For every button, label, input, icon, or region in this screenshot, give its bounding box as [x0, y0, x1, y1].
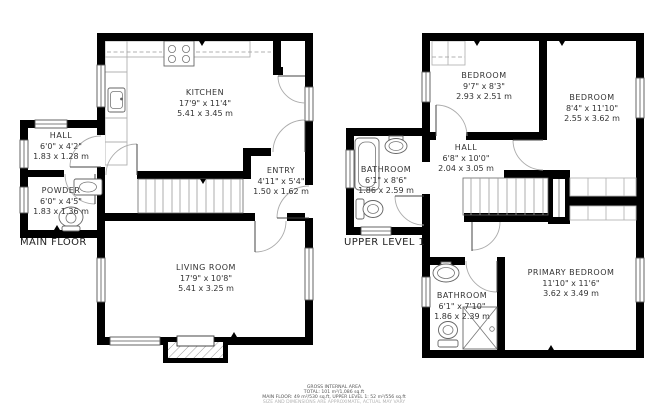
- room-name: BEDROOM: [456, 71, 512, 82]
- room-name: HALL: [33, 131, 89, 142]
- stove-icon: [164, 41, 194, 66]
- toilet-icon: [438, 322, 458, 348]
- window: [636, 78, 644, 118]
- door-swing: [255, 221, 286, 252]
- room-dim-metric: 1.50 x 1.62 m: [253, 187, 309, 198]
- room-label-living-room: LIVING ROOM 17'9" x 10'8" 5.41 x 3.25 m: [176, 263, 236, 295]
- room-dim-metric: 2.55 x 3.62 m: [564, 114, 620, 125]
- closet-icon: [432, 41, 465, 65]
- room-dim-metric: 3.62 x 3.49 m: [528, 289, 615, 300]
- window: [305, 248, 313, 300]
- window: [110, 337, 160, 345]
- toilet-icon: [356, 199, 383, 219]
- window: [97, 258, 105, 302]
- kitchen-sink-icon: [108, 88, 125, 112]
- door-swing: [273, 120, 305, 152]
- room-name: POWDER: [33, 186, 89, 197]
- window: [35, 120, 67, 128]
- window: [361, 227, 391, 235]
- room-dim-imperial: 11'10" x 11'6": [528, 279, 615, 290]
- door-swing: [513, 140, 543, 170]
- window: [97, 65, 105, 107]
- floor-plan-drawing: [0, 0, 668, 417]
- area-summary: GROSS INTERNAL AREA TOTAL: 101 m²/1,086 …: [0, 385, 668, 405]
- room-dim-imperial: 6'8" x 10'0": [438, 154, 494, 165]
- door-opening: [97, 135, 105, 167]
- room-dim-metric: 2.93 x 2.51 m: [456, 92, 512, 103]
- room-label-primary-bedroom: PRIMARY BEDROOM 11'10" x 11'6" 3.62 x 3.…: [528, 268, 615, 300]
- window: [422, 277, 430, 307]
- room-label-bedroom-left: BEDROOM 9'7" x 8'3" 2.93 x 2.51 m: [456, 71, 512, 103]
- room-label-bedroom-right: BEDROOM 8'4" x 11'10" 2.55 x 3.62 m: [564, 93, 620, 125]
- area-summary-disclaimer: SIZE AND DIMENSIONS ARE APPROXIMATE, ACT…: [0, 400, 668, 405]
- room-dim-metric: 1.86 x 2.59 m: [358, 186, 414, 197]
- stairs: [138, 179, 243, 213]
- room-dim-imperial: 8'4" x 11'10": [564, 104, 620, 115]
- door-swing: [106, 144, 137, 175]
- floor-title-main: MAIN FLOOR: [20, 237, 87, 248]
- room-label-hall-main: HALL 6'0" x 4'2" 1.83 x 1.28 m: [33, 131, 89, 163]
- stairs: [463, 178, 548, 215]
- room-dim-imperial: 6'1" x 7'10": [434, 302, 490, 313]
- room-label-bathroom-bottom: BATHROOM 6'1" x 7'10" 1.86 x 2.39 m: [434, 291, 490, 323]
- room-dim-imperial: 6'0" x 4'2": [33, 142, 89, 153]
- room-label-entry: ENTRY 4'11" x 5'4" 1.50 x 1.62 m: [253, 166, 309, 198]
- room-dim-metric: 1.83 x 1.28 m: [33, 152, 89, 163]
- window: [305, 87, 313, 121]
- window: [20, 140, 28, 168]
- room-name: BATHROOM: [434, 291, 490, 302]
- room-name: BATHROOM: [358, 165, 414, 176]
- room-dim-metric: 1.86 x 2.39 m: [434, 312, 490, 323]
- window: [20, 187, 28, 213]
- room-dim-imperial: 17'9" x 11'4": [177, 99, 233, 110]
- room-dim-imperial: 9'7" x 8'3": [456, 82, 512, 93]
- room-dim-metric: 5.41 x 3.25 m: [176, 284, 236, 295]
- room-label-hall-upper: HALL 6'8" x 10'0" 2.04 x 3.05 m: [438, 143, 494, 175]
- fireplace-icon: [163, 336, 228, 363]
- door-swing: [472, 222, 500, 251]
- door-swing: [395, 196, 424, 225]
- door-opening: [422, 162, 430, 194]
- room-name: LIVING ROOM: [176, 263, 236, 274]
- room-label-bathroom-top: BATHROOM 6'1" x 8'6" 1.86 x 2.59 m: [358, 165, 414, 197]
- window: [346, 150, 354, 188]
- room-dim-imperial: 6'1" x 8'6": [358, 176, 414, 187]
- room-label-kitchen: KITCHEN 17'9" x 11'4" 5.41 x 3.45 m: [177, 88, 233, 120]
- floor-plan-image: KITCHEN 17'9" x 11'4" 5.41 x 3.45 m HALL…: [0, 0, 668, 417]
- door-swing: [436, 105, 467, 136]
- room-dim-imperial: 6'0" x 4'5": [33, 197, 89, 208]
- room-name: ENTRY: [253, 166, 309, 177]
- room-dim-imperial: 17'9" x 10'8": [176, 274, 236, 285]
- room-name: KITCHEN: [177, 88, 233, 99]
- room-dim-metric: 5.41 x 3.45 m: [177, 109, 233, 120]
- bathroom-sink-icon: [385, 136, 407, 154]
- door-swing: [466, 261, 497, 292]
- room-name: BEDROOM: [564, 93, 620, 104]
- room-label-powder: POWDER 6'0" x 4'5" 1.83 x 1.36 m: [33, 186, 89, 218]
- room-dim-metric: 2.04 x 3.05 m: [438, 164, 494, 175]
- room-dim-imperial: 4'11" x 5'4": [253, 177, 309, 188]
- door-swing: [278, 76, 305, 103]
- floor-title-upper: UPPER LEVEL 1: [344, 237, 425, 248]
- room-dim-metric: 1.83 x 1.36 m: [33, 207, 89, 218]
- window: [636, 258, 644, 302]
- window: [422, 72, 430, 102]
- room-name: HALL: [438, 143, 494, 154]
- room-name: PRIMARY BEDROOM: [528, 268, 615, 279]
